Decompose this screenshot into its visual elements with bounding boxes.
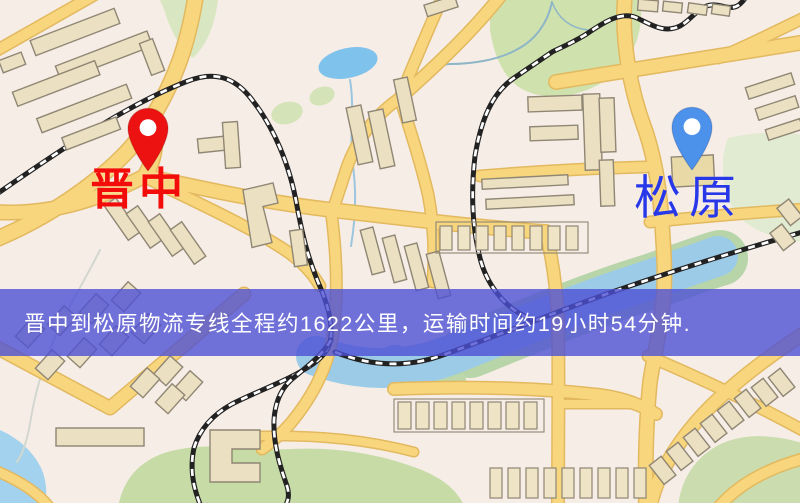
- origin-label: 晋中: [90, 168, 188, 212]
- origin-marker-icon[interactable]: [126, 107, 170, 171]
- map-canvas[interactable]: 晋中 松原 晋中到松原物流专线全程约1622公里，运输时间约19小时54分钟.: [0, 0, 800, 503]
- destination-marker-icon[interactable]: [670, 106, 714, 170]
- route-info-banner: 晋中到松原物流专线全程约1622公里，运输时间约19小时54分钟.: [0, 289, 800, 356]
- route-info-text: 晋中到松原物流专线全程约1622公里，运输时间约19小时54分钟.: [0, 307, 691, 338]
- map-image: [0, 0, 800, 503]
- destination-label: 松原: [634, 174, 744, 221]
- unit-row-c: [490, 468, 646, 498]
